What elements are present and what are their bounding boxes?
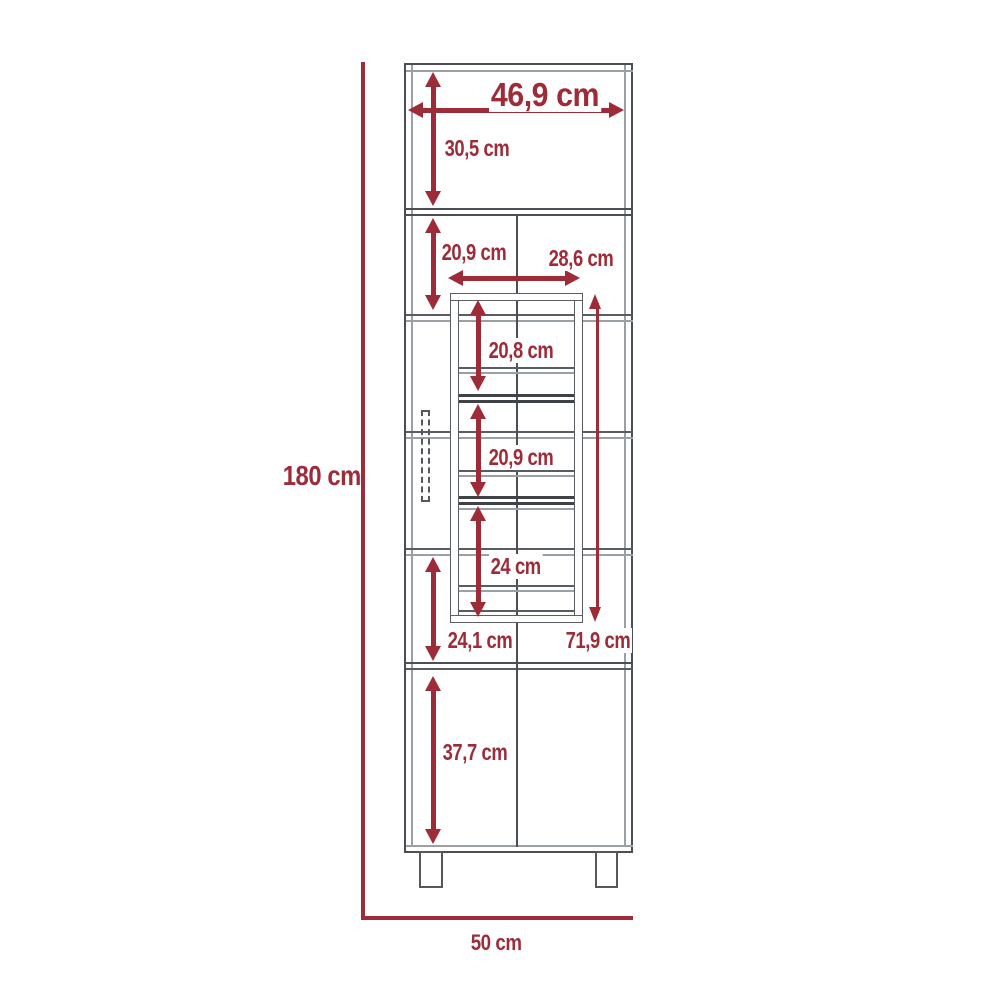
- dimension-label-50: 50 cm: [469, 931, 523, 955]
- dimension-label-46-9: 46,9 cm: [489, 77, 601, 112]
- divider-line-1a: [406, 208, 633, 210]
- rack-shelf-line: [459, 400, 574, 403]
- leg-left: [419, 851, 443, 888]
- center-divider-line: [516, 214, 518, 847]
- dimension-arrow-24: [470, 506, 486, 617]
- dimension-arrow-71-9: [589, 294, 605, 622]
- dimension-arrow-20-9-upper: [425, 218, 441, 310]
- dimension-arrow-24-1: [425, 557, 441, 661]
- cabinet-base-line: [406, 845, 633, 847]
- dimension-label-20-8: 20,8 cm: [487, 338, 555, 363]
- dimension-arrow-20-9-inner: [470, 404, 486, 497]
- dimension-arrow-28-6: [448, 270, 580, 286]
- dimension-label-24: 24 cm: [489, 554, 542, 579]
- dimension-label-24-1: 24,1 cm: [446, 628, 514, 653]
- dimension-label-20-9-upper: 20,9 cm: [440, 240, 508, 265]
- rack-bar-right: [574, 293, 583, 623]
- rack-shelf-line: [459, 502, 574, 505]
- dimension-label-180: 180 cm: [281, 461, 337, 491]
- cabinet-inner-right-line: [624, 65, 626, 845]
- width-extent-line: [361, 916, 633, 920]
- divider-line-5b: [406, 668, 633, 670]
- dimension-label-71-9: 71,9 cm: [564, 628, 632, 653]
- rack-shelf-line: [459, 394, 574, 397]
- height-extent-line: [361, 62, 365, 920]
- dimension-arrow-37-7: [425, 676, 441, 844]
- divider-line-5a: [406, 662, 633, 664]
- door-handle-hidden-line: [421, 410, 430, 502]
- dimension-label-37-7: 37,7 cm: [441, 740, 509, 765]
- dimension-arrow-20-8: [470, 300, 486, 391]
- leg-right: [595, 851, 618, 888]
- furniture-dimension-diagram: 46,9 cm 30,5 cm 20,9 cm 28,6 cm 20,8 cm …: [0, 0, 1000, 1000]
- dimension-label-28-6: 28,6 cm: [547, 246, 615, 271]
- dimension-arrow-30-5: [425, 72, 441, 206]
- dimension-label-20-9-inner: 20,9 cm: [487, 445, 555, 470]
- dimension-label-30-5: 30,5 cm: [443, 136, 511, 161]
- cabinet-inner-left-line: [411, 65, 413, 845]
- rack-bar-left: [450, 293, 459, 623]
- divider-line-1b: [406, 214, 633, 216]
